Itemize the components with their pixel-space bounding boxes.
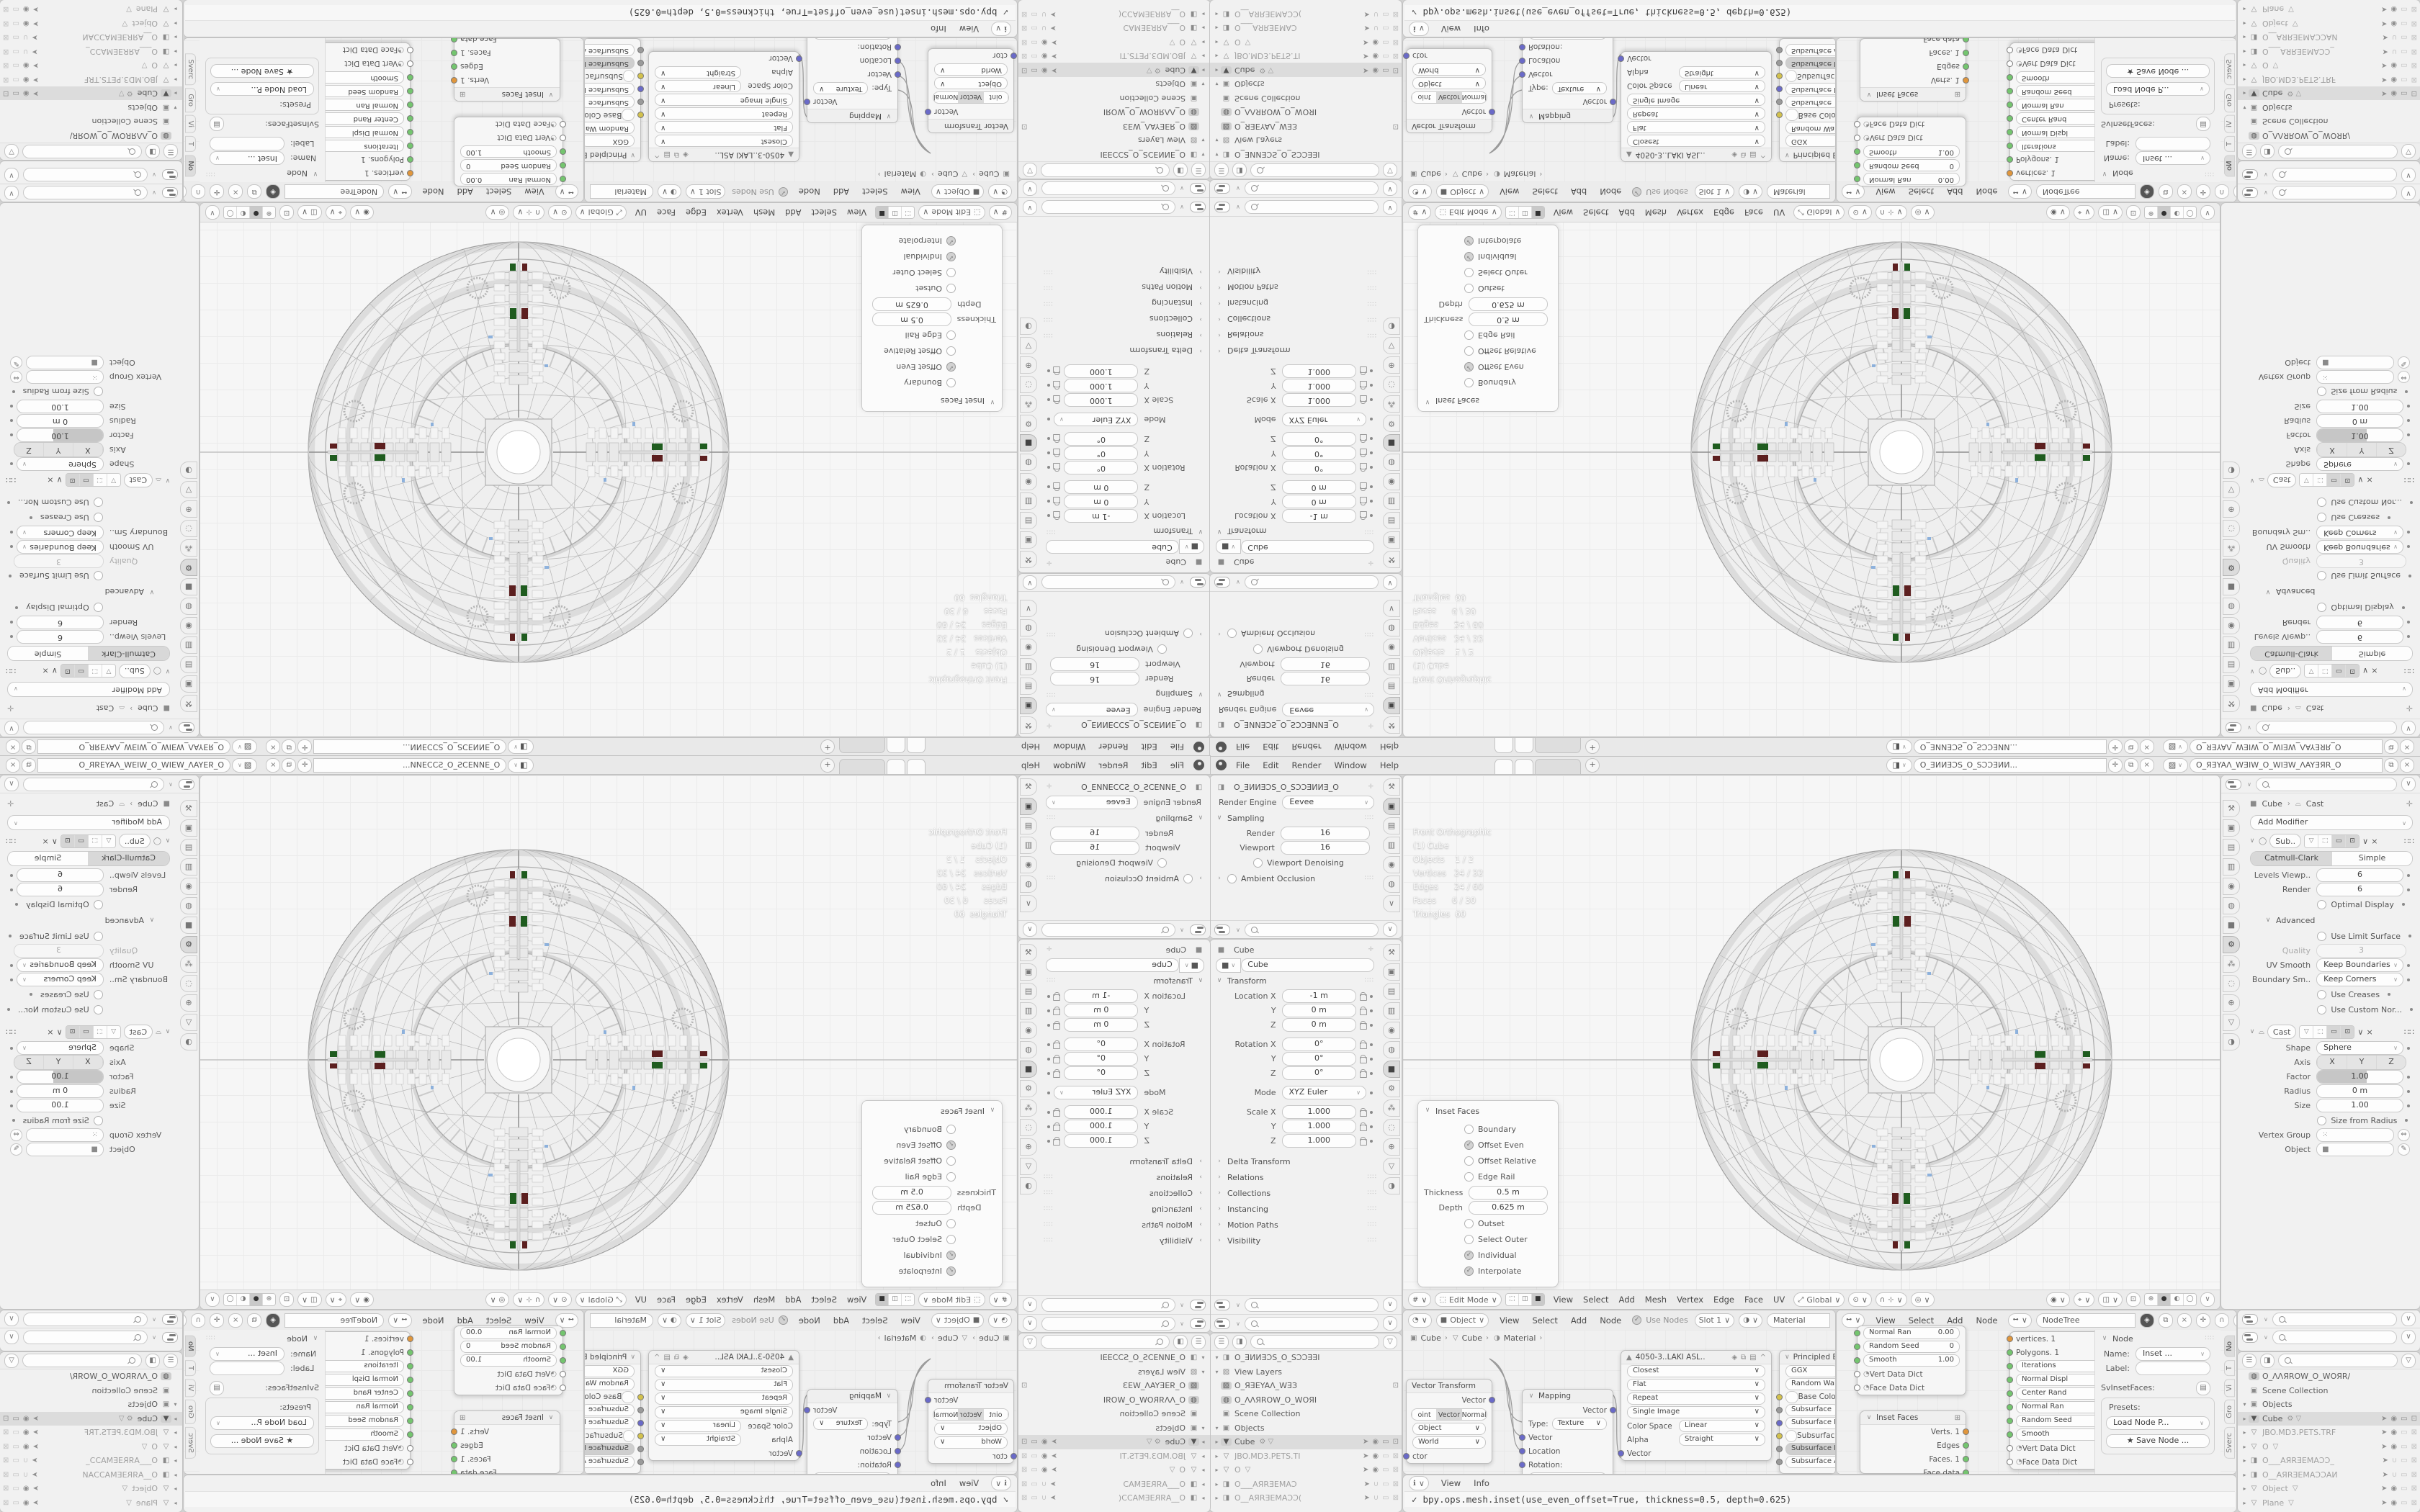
datablock-name[interactable]: View Layers	[1138, 135, 1186, 145]
outliner-row[interactable]: ▸ ▽ Object ▽ ➤◉▭⊠	[0, 1482, 182, 1496]
visibility-toggles[interactable]: ➤∪▭⊠	[1363, 1494, 1399, 1502]
node-label-field[interactable]	[210, 1362, 284, 1375]
output-socket[interactable]	[1963, 38, 1969, 42]
disclosure-icon[interactable]: ▸	[1199, 11, 1207, 17]
colorspace-select[interactable]: Linear∨	[1679, 80, 1765, 92]
disclosure-icon[interactable]: ▾	[1199, 1369, 1207, 1375]
outliner-row[interactable]: ▸ ▽ Object ▽ ➤◉▭⊠	[2238, 17, 2420, 31]
property-tab-icon[interactable]: ▥	[1383, 658, 1400, 675]
outliner-row[interactable]: ▸ ▽ O ▽ ➤◉▭⊠	[0, 58, 182, 73]
sampling-panel-title[interactable]: Sampling	[1227, 814, 1265, 823]
shader-node-canvas[interactable]: ▣Cube›▽Cube›◑Material› Vector Transform …	[585, 38, 1017, 182]
input-socket[interactable]	[2007, 88, 2013, 94]
material-slot-select[interactable]: Slot 1∨	[1695, 185, 1735, 199]
use-creases-checkbox[interactable]	[94, 513, 103, 523]
datablock-name[interactable]: JBO.MD3.PETS.TI	[1234, 1452, 1301, 1461]
viewport-menu-item[interactable]: Add	[780, 1293, 806, 1306]
vector-output-socket[interactable]	[804, 99, 810, 105]
advanced-section-title[interactable]: Advanced	[2276, 588, 2315, 597]
node-name-field[interactable]: Inset ...	[210, 1347, 284, 1361]
property-tab-icon[interactable]: ▣	[1383, 963, 1400, 981]
lock-icon[interactable]	[1053, 382, 1060, 388]
properties-search-input[interactable]	[23, 186, 148, 200]
outliner-row[interactable]: ▾ ◨ O_ƎИИƎƆS_O_SƆƆƎƎI	[1018, 148, 1210, 162]
outliner-row[interactable]: ▸ ◨ O___AЯRƎEMAƆƆ_ ➤∪▭⊠	[0, 45, 182, 59]
collapsed-section[interactable]: ›Instancing ∷∷	[1043, 296, 1204, 310]
value-field[interactable]: -1 m	[1064, 989, 1138, 1003]
input-socket[interactable]	[1776, 99, 1783, 105]
eyedropper-icon[interactable]: ✎	[2398, 1143, 2410, 1156]
dict-socket[interactable]	[2007, 47, 2013, 53]
texture-option-select[interactable]: Repeat∨	[655, 1392, 793, 1405]
properties-search-input[interactable]	[2256, 778, 2397, 791]
disclosure-icon[interactable]: ▸	[1199, 39, 1207, 45]
vector-input-socket[interactable]	[796, 55, 802, 62]
property-tab-icon[interactable]: ▥	[1383, 1002, 1400, 1020]
viewport-menu-item[interactable]: UV	[1768, 206, 1790, 219]
outliner-row[interactable]: ▸ ▽ JBO.MD3.PETS.TRF ➤◉▭⊠	[2238, 1426, 2420, 1440]
value-field[interactable]: 0.625 m	[1469, 1201, 1548, 1215]
bsdf-field[interactable]	[1785, 109, 1798, 122]
editor-type-button[interactable]: #∨	[989, 205, 1012, 220]
outliner-row[interactable]: ▾ ▣ Objects	[1210, 77, 1402, 91]
property-tab-icon[interactable]: ◑	[2223, 462, 2240, 479]
checkbox[interactable]	[1464, 1125, 1474, 1134]
viewport-menu-item[interactable]: Edge	[1708, 206, 1739, 219]
outliner-row[interactable]: ▾ ◨ O_ƎИИƎƆS_O_SƆƆƎƎI	[1210, 1351, 1402, 1365]
quality-field[interactable]: 3	[14, 944, 104, 958]
property-tab-icon[interactable]: ⊕	[2223, 994, 2240, 1012]
animate-dot-icon[interactable]	[2407, 874, 2410, 877]
collapsed-section[interactable]: ›Collections ∷∷	[1216, 312, 1377, 326]
filter-toggle-icon[interactable]	[2226, 723, 2241, 734]
property-tab-icon[interactable]: ◉	[1383, 639, 1400, 656]
disclosure-icon[interactable]: ▾	[1213, 1425, 1221, 1431]
input-socket[interactable]	[2007, 156, 2013, 163]
visibility-toggles[interactable]: ➤◉▭⊡	[1363, 1438, 1399, 1446]
delete-modifier-icon[interactable]: ×	[47, 1027, 53, 1037]
close-icon[interactable]: ×	[2400, 758, 2414, 773]
property-tab-icon[interactable]: ▤	[1020, 817, 1037, 834]
property-tab-icon[interactable]: ⁂	[1383, 395, 1400, 413]
texture-option-select[interactable]: Flat∨	[655, 121, 793, 133]
display-mode-icon[interactable]: ☰	[1191, 1335, 1206, 1349]
input-socket[interactable]	[407, 156, 413, 163]
input-socket[interactable]	[637, 1420, 644, 1426]
input-socket[interactable]	[2007, 143, 2013, 149]
property-tab-icon[interactable]: ⚙	[2223, 559, 2240, 576]
copy-icon[interactable]: ⧉	[247, 1313, 261, 1328]
outliner-row[interactable]: ▾ ◨ O_ƎИИƎƆS_O_SƆƆƎƎI	[1210, 148, 1402, 162]
property-tab-icon[interactable]: ▣	[1383, 798, 1400, 815]
collapsed-section[interactable]: ›Collections ∷∷	[1216, 1186, 1377, 1200]
vector-transform-node[interactable]: Vector Transform Vector ointVectorNormal…	[1406, 48, 1492, 133]
property-tab-icon[interactable]: ◌	[1383, 1119, 1400, 1136]
property-tab-icon[interactable]: ⚙	[1020, 1080, 1037, 1097]
principled-bsdf-node[interactable]: ∨Principled BSDF GGX Random Walk	[1779, 1350, 1835, 1474]
copy-icon[interactable]: ⧉	[674, 151, 679, 159]
use-custom-normals-checkbox[interactable]	[94, 1005, 103, 1014]
output-socket[interactable]	[451, 1428, 457, 1435]
disclosure-icon[interactable]: ▸	[2241, 1429, 2249, 1436]
render-engine-select[interactable]: Eevee	[1046, 703, 1138, 716]
select-mode-buttons[interactable]: ⬚◫■	[875, 206, 915, 219]
ambient-occlusion-title[interactable]: Ambient Occlusion	[1241, 874, 1315, 883]
number-field[interactable]: 6	[2316, 883, 2403, 896]
vector-output-socket[interactable]	[804, 1407, 810, 1413]
visibility-toggles[interactable]: ➤◉▭⊠	[3, 19, 39, 27]
display-mode-icon[interactable]: ☰	[163, 1354, 178, 1368]
collapsed-section[interactable]: ›Delta Transform	[1043, 1154, 1204, 1169]
fake-user-icon[interactable]: ◈	[1731, 151, 1737, 159]
vector-output-socket[interactable]	[1610, 1407, 1616, 1413]
node-title[interactable]: Vector Transform	[928, 119, 1013, 132]
visibility-toggles[interactable]: ➤◉▭⊠	[2381, 5, 2417, 13]
value-field[interactable]: 1.000	[1064, 1134, 1138, 1148]
mapping-node[interactable]: ∨Mapping Vector Type:Texture∨ VectorLoca…	[807, 1389, 898, 1474]
use-limit-surface-checkbox[interactable]	[2317, 572, 2326, 581]
visibility-toggles[interactable]: ➤◉▭⊠	[1363, 38, 1399, 46]
node-select[interactable]: World∨	[1412, 63, 1486, 76]
lock-icon[interactable]	[1360, 464, 1367, 470]
shader-type-select[interactable]: ■Object∨	[931, 1313, 984, 1328]
breadcrumb-object[interactable]: Cube	[2262, 703, 2282, 713]
node-title[interactable]: Inset Faces	[1876, 90, 1918, 99]
enum-select[interactable]: Keep Corners	[2316, 973, 2403, 986]
modifier-name-field[interactable]: Sub..	[119, 664, 151, 678]
property-tab-icon[interactable]: ◌	[1020, 376, 1037, 393]
outliner-row[interactable]: ▨ O_ЯƎEYAΛ_WƎЗ ⊡	[1210, 120, 1402, 134]
visibility-toggles[interactable]: ➤◉▭⊠	[3, 76, 39, 84]
visibility-toggles[interactable]: ➤◉▭⊠	[3, 5, 39, 13]
vector-transform-node[interactable]: Vector Transform Vector ointVectorNormal…	[1406, 1379, 1492, 1464]
disclosure-icon[interactable]: ▸	[1213, 1439, 1221, 1445]
property-tab-icon[interactable]: ◑	[180, 462, 197, 479]
info-menu-item[interactable]: View	[1435, 22, 1467, 35]
operator-panel-title[interactable]: Inset Faces	[941, 396, 985, 405]
node-canvas[interactable]: Normal Ran0.00 Random Seed0 Smooth1.00 ◔…	[184, 1330, 583, 1474]
transform-orientation-select[interactable]: ⤢Global∨	[575, 205, 627, 220]
node-menu-item[interactable]: View	[1869, 186, 1901, 199]
outliner-row[interactable]: ▸ ▽ Object ▽ ➤◉▭⊠	[2238, 1482, 2420, 1496]
viewport-menu-item[interactable]: UV	[630, 206, 652, 219]
filter-icon[interactable]: ▽	[1383, 1335, 1397, 1349]
chevron-down-icon[interactable]: ∨	[2401, 721, 2416, 735]
property-tab-icon[interactable]: ▤	[1020, 983, 1037, 1000]
visibility-toggles[interactable]: ⊡	[1021, 1382, 1027, 1390]
axis-toggle[interactable]: X	[73, 1056, 103, 1069]
pin-icon[interactable]: ✛	[1046, 783, 1052, 791]
animate-dot-icon[interactable]	[1047, 1043, 1050, 1046]
disclosure-icon[interactable]: ▸	[2241, 90, 2249, 96]
properties-search-input[interactable]	[1245, 201, 1379, 215]
outliner-search-input[interactable]	[2278, 145, 2398, 158]
checkbox[interactable]	[1464, 378, 1474, 387]
input-socket[interactable]	[637, 1407, 644, 1413]
dict-socket[interactable]	[1854, 121, 1860, 127]
snap-icon[interactable]: ∩	[191, 185, 205, 199]
chevron-down-icon[interactable]: ∨	[1023, 1297, 1037, 1312]
outliner-row[interactable]: ▣ Scene Collection	[1210, 91, 1402, 106]
axis-toggle[interactable]: X	[2317, 1056, 2347, 1069]
segment-option[interactable]: Catmull-Clark	[2251, 852, 2331, 865]
disclosure-icon[interactable]: ▸	[1213, 1467, 1221, 1473]
visibility-toggles[interactable]: ➤◉▭⊠	[3, 1428, 39, 1436]
visibility-toggles[interactable]: ➤◉▭⊡	[1363, 66, 1399, 74]
disclosure-icon[interactable]: ▸	[171, 1485, 179, 1492]
viewport-menu-item[interactable]: Add	[780, 206, 806, 219]
property-tab-icon[interactable]: ■	[1383, 434, 1400, 451]
collapsed-section[interactable]: ›Instancing ∷∷	[1216, 296, 1377, 310]
datablock-name[interactable]: Cube	[1165, 1437, 1186, 1446]
input-socket[interactable]	[637, 1446, 644, 1452]
datablock-name[interactable]: Scene Collection	[2262, 117, 2328, 126]
input-socket[interactable]	[1519, 1434, 1525, 1441]
bsdf-field[interactable]: GGX	[1785, 135, 1835, 148]
property-tab-icon[interactable]: ▤	[2223, 839, 2240, 856]
pin-icon[interactable]: ✛	[1368, 721, 1374, 729]
animate-dot-icon[interactable]	[2407, 621, 2410, 624]
enum-select[interactable]: Keep Corners	[2316, 526, 2403, 539]
lock-icon[interactable]	[1360, 483, 1367, 490]
segment-option[interactable]: Normal	[1461, 1409, 1487, 1420]
property-tab-icon[interactable]: ▽	[1383, 1158, 1400, 1175]
disclosure-icon[interactable]: ▸	[1213, 1453, 1221, 1459]
collapsed-section[interactable]: ›Visibility ∷∷	[1043, 1233, 1204, 1248]
output-socket[interactable]	[560, 1330, 566, 1336]
input-socket[interactable]	[407, 1418, 413, 1424]
ambient-occlusion-title[interactable]: Ambient Occlusion	[1105, 874, 1179, 883]
value-field[interactable]: 0 m	[1282, 1018, 1356, 1032]
property-tab-icon[interactable]: ◍	[1020, 619, 1037, 636]
object-id-icon[interactable]: ■∨	[1216, 958, 1241, 973]
inset-params-node[interactable]: Normal Ran0.00 Random Seed0 Smooth1.00 ◔…	[1857, 1326, 1966, 1395]
chevron-down-icon[interactable]: ∨	[1383, 181, 1397, 196]
chevron-down-icon[interactable]: ∨	[1023, 575, 1037, 590]
scene-icon[interactable]: ◨∨	[1886, 758, 1912, 773]
material-icon[interactable]: ◑∨	[1739, 185, 1762, 199]
disclosure-icon[interactable]: ▾	[171, 1401, 179, 1408]
modifier-name-field[interactable]: Sub..	[119, 834, 151, 848]
visibility-toggles[interactable]: ➤◉▭⊠	[1363, 1452, 1399, 1460]
disclosure-icon[interactable]: ▸	[171, 1429, 179, 1436]
viewport-menu-item[interactable]: Face	[1739, 206, 1768, 219]
number-field[interactable]: 16	[1050, 672, 1139, 685]
axis-toggle[interactable]: Y	[44, 1056, 73, 1069]
bsdf-field[interactable]: Subsurface Anis	[1785, 1456, 1835, 1468]
param-field[interactable]: Normal Ran0.00	[460, 1327, 557, 1339]
view-layer-name-field[interactable]: O_ЯƎYAΛ_WƎIW_O_WIƎW_ΛAYƎЯR_O	[37, 758, 230, 773]
collapsed-section[interactable]: ›Delta Transform	[1216, 1154, 1377, 1169]
dict-socket[interactable]	[560, 135, 566, 141]
property-tab-icon[interactable]: ▣	[180, 675, 197, 693]
property-tab-icon[interactable]: ◉	[1020, 856, 1037, 873]
bsdf-field[interactable]: Subsurface Anis	[585, 45, 635, 57]
visibility-toggles[interactable]: ⊡	[1393, 122, 1399, 130]
dict-socket[interactable]	[407, 47, 413, 53]
outliner-row[interactable]: ▣ Scene Collection	[1018, 1407, 1210, 1421]
shader-menu-item[interactable]: View	[895, 186, 927, 199]
topbar-menu-item[interactable]: Render	[1093, 741, 1135, 754]
transform-panel-title[interactable]: Transform	[1227, 527, 1267, 536]
input-socket[interactable]	[895, 71, 901, 78]
property-tab-icon[interactable]: ◍	[1383, 876, 1400, 893]
segment-option[interactable]: oint	[1412, 1409, 1436, 1420]
visibility-toggles[interactable]: ➤◉▭⊠	[2381, 19, 2417, 27]
output-socket[interactable]	[1854, 162, 1860, 168]
colorspace-select[interactable]: Linear∨	[1679, 1420, 1765, 1432]
invert-vgroup-icon[interactable]: ⇔	[10, 1129, 22, 1141]
bsdf-field[interactable]: Subsurface Radiu	[585, 84, 635, 96]
chevron-down-icon[interactable]: ∨	[1023, 200, 1037, 215]
property-tab-icon[interactable]: ◑	[1020, 1177, 1037, 1194]
bsdf-field[interactable]: Random Walk	[1785, 1378, 1835, 1390]
inset-params-node[interactable]: Normal Ran0.00 Random Seed0 Smooth1.00 ◔…	[1857, 117, 1966, 186]
scene-icon[interactable]: ◨∨	[508, 740, 533, 755]
node-title[interactable]: Mapping	[849, 112, 882, 120]
shape-select[interactable]: Sphere	[2316, 457, 2403, 471]
chevron-down-icon[interactable]: ∨	[4, 1330, 19, 1344]
datablock-name[interactable]: Cube	[2262, 1414, 2282, 1423]
ambient-occlusion-checkbox[interactable]	[1227, 874, 1237, 883]
animate-dot-icon[interactable]	[1047, 370, 1050, 373]
input-socket[interactable]	[637, 99, 644, 105]
disclosure-icon[interactable]: ▸	[1199, 1453, 1207, 1459]
outliner-row[interactable]: ▾ ▨ View Layers	[1210, 133, 1402, 148]
shading-dropdown-icon[interactable]: ∨	[205, 205, 220, 220]
collapsed-section[interactable]: ›Instancing ∷∷	[1043, 1202, 1204, 1216]
view-layer-icon[interactable]: ▨∨	[2163, 758, 2188, 773]
checkbox[interactable]	[946, 330, 956, 340]
shader-menu-item[interactable]: Add	[1564, 1314, 1593, 1327]
fake-user-icon[interactable]: ◈	[266, 185, 280, 199]
shader-menu-item[interactable]: View	[1493, 186, 1525, 199]
x-rotation-field[interactable]: X0°	[813, 38, 892, 40]
segment-option[interactable]: oint	[984, 92, 1008, 103]
value-field[interactable]: 0°	[1064, 1052, 1138, 1066]
disclosure-icon[interactable]: ▸	[1213, 1495, 1221, 1501]
property-tab-icon[interactable]: ⁂	[1020, 395, 1037, 413]
property-tab-icon[interactable]: ■	[2223, 578, 2240, 595]
object-name-field[interactable]: Cube	[1241, 540, 1374, 554]
output-socket[interactable]	[1854, 1330, 1860, 1336]
filter-toggle-icon[interactable]	[1214, 1318, 1230, 1329]
outliner-row[interactable]: ▸ ▽ JBO.MD3.PETS.TI ➤◉▭⊠	[1018, 49, 1210, 63]
lock-icon[interactable]	[1053, 396, 1060, 402]
value-field[interactable]: 0°	[1282, 1038, 1356, 1051]
operator-panel-title[interactable]: Inset Faces	[941, 1107, 985, 1116]
input-socket[interactable]	[407, 1431, 413, 1438]
close-icon[interactable]: ×	[228, 185, 243, 199]
input-socket[interactable]	[2007, 102, 2013, 108]
visibility-toggles[interactable]: ➤∪▭⊠	[3, 33, 38, 41]
property-tab-icon[interactable]: ▤	[1383, 512, 1400, 529]
inset-params-node[interactable]: Normal Ran0.00 Random Seed0 Smooth1.00 ◔…	[454, 1326, 563, 1395]
param-field[interactable]: Random Seed0	[1863, 1341, 1960, 1353]
bsdf-field[interactable]: Random Walk	[585, 122, 635, 135]
input-socket[interactable]	[407, 1377, 413, 1383]
dict-socket[interactable]	[560, 1371, 566, 1377]
collapsed-section[interactable]: ›Visibility ∷∷	[1216, 1233, 1377, 1248]
property-tab-icon[interactable]: ⚙	[1383, 415, 1400, 432]
dict-socket[interactable]	[407, 60, 413, 67]
node-title[interactable]: Principled BSDF	[1793, 1353, 1835, 1362]
eyedropper-icon[interactable]: ✎	[10, 356, 22, 369]
outliner-row[interactable]: ▾ ▨ View Layers	[1018, 1365, 1210, 1380]
visibility-toggles[interactable]: ➤◉▭⊠	[1363, 1466, 1399, 1474]
delete-modifier-icon[interactable]: ×	[42, 837, 49, 846]
chevron-down-icon[interactable]: ∨	[1023, 1316, 1037, 1331]
input-socket[interactable]	[1519, 71, 1525, 78]
value-field[interactable]: 0°	[1064, 461, 1138, 474]
vector-input-socket[interactable]	[1618, 1450, 1624, 1457]
shader-menu-item[interactable]: View	[895, 1314, 927, 1327]
outliner-row[interactable]: ▸ ◨ O__AЯRƎEMAƆƆAИ ➤∪▭⊠	[2238, 1468, 2420, 1482]
sidebar-tab[interactable]: Sverc	[2224, 1427, 2235, 1459]
outliner-search-input[interactable]	[2278, 1354, 2398, 1367]
visibility-toggles[interactable]: ➤◉▭⊠	[1021, 38, 1057, 46]
topbar-menu-item[interactable]: Help	[1373, 759, 1405, 772]
image-texture-node[interactable]: ▲4050-3..LAKI ASL..◈⧉▤^ Closest∨Flat∨Rep…	[1621, 1350, 1772, 1461]
scene-filter-icon[interactable]: ◨	[1232, 1335, 1247, 1349]
animate-dot-icon[interactable]	[10, 888, 13, 891]
outliner-row[interactable]: ▸ ▽ SBINEL ▽ ➤◉▭⊠	[2238, 0, 2420, 2]
number-field[interactable]: 16	[1050, 841, 1139, 855]
value-field[interactable]: 0 m	[1282, 1004, 1356, 1017]
copy-icon[interactable]: ⧉	[22, 758, 36, 773]
chevron-down-icon[interactable]: ∨	[2401, 186, 2416, 200]
add-modifier-button[interactable]: Add Modifier	[2250, 815, 2413, 830]
disclosure-icon[interactable]: ▸	[2241, 34, 2249, 40]
vector-input-socket[interactable]	[1618, 55, 1624, 62]
outliner-search-input[interactable]	[1250, 1335, 1379, 1349]
bsdf-field[interactable]: Subsurface Anis	[585, 1456, 635, 1468]
advanced-section-title[interactable]: Advanced	[105, 916, 144, 925]
property-tab-icon[interactable]: ▣	[1020, 963, 1037, 981]
use-creases-checkbox[interactable]	[94, 990, 103, 999]
output-socket[interactable]	[451, 63, 457, 70]
lock-icon[interactable]	[1360, 512, 1367, 518]
input-socket[interactable]	[895, 58, 901, 64]
filter-toggle-icon[interactable]	[2242, 188, 2258, 199]
proportional-editing-toggle[interactable]: ◎∨	[486, 1292, 510, 1307]
outliner-row[interactable]: ▣ Scene Collection	[0, 1384, 182, 1398]
disclosure-icon[interactable]: ▸	[2241, 1444, 2249, 1450]
outliner-row[interactable]: ▾ ◨ O_ƎИИƎƆS_O_SƆƆƎƎI	[1018, 1351, 1210, 1365]
view-layer-name-field[interactable]: O_ЯƎYAΛ_WƎIW_O_WIƎW_ΛAYƎЯR_O	[2190, 740, 2383, 755]
overlay-icon[interactable]: ◎	[184, 1313, 187, 1328]
input-socket[interactable]	[1776, 1459, 1783, 1465]
input-socket[interactable]	[2007, 1404, 2013, 1410]
input-socket[interactable]	[1519, 1448, 1525, 1454]
input-socket[interactable]	[407, 1336, 413, 1342]
animate-dot-icon[interactable]	[1370, 1024, 1373, 1027]
proportional-editing-toggle[interactable]: ◎∨	[486, 205, 510, 220]
modifier-name-field[interactable]: Cast	[2267, 1025, 2296, 1039]
value-field[interactable]: 1.000	[1064, 1105, 1138, 1119]
disclosure-icon[interactable]: ▸	[1199, 53, 1207, 59]
visibility-toggles[interactable]: ➤◉▭⊠	[3, 1443, 39, 1451]
nodetree-name-field[interactable]: NodeTree	[2036, 1313, 2136, 1328]
animate-dot-icon[interactable]	[1047, 486, 1050, 489]
bsdf-field[interactable]: GGX	[1785, 1365, 1835, 1377]
shader-menu-item[interactable]: Node	[792, 186, 827, 199]
chevron-down-icon[interactable]: ∨	[1383, 922, 1397, 937]
disclosure-icon[interactable]: ▸	[2241, 6, 2249, 12]
node-menu-item[interactable]: Node	[416, 1314, 451, 1327]
output-socket[interactable]	[560, 176, 566, 182]
viewport-menu-item[interactable]: Mesh	[748, 1293, 780, 1306]
